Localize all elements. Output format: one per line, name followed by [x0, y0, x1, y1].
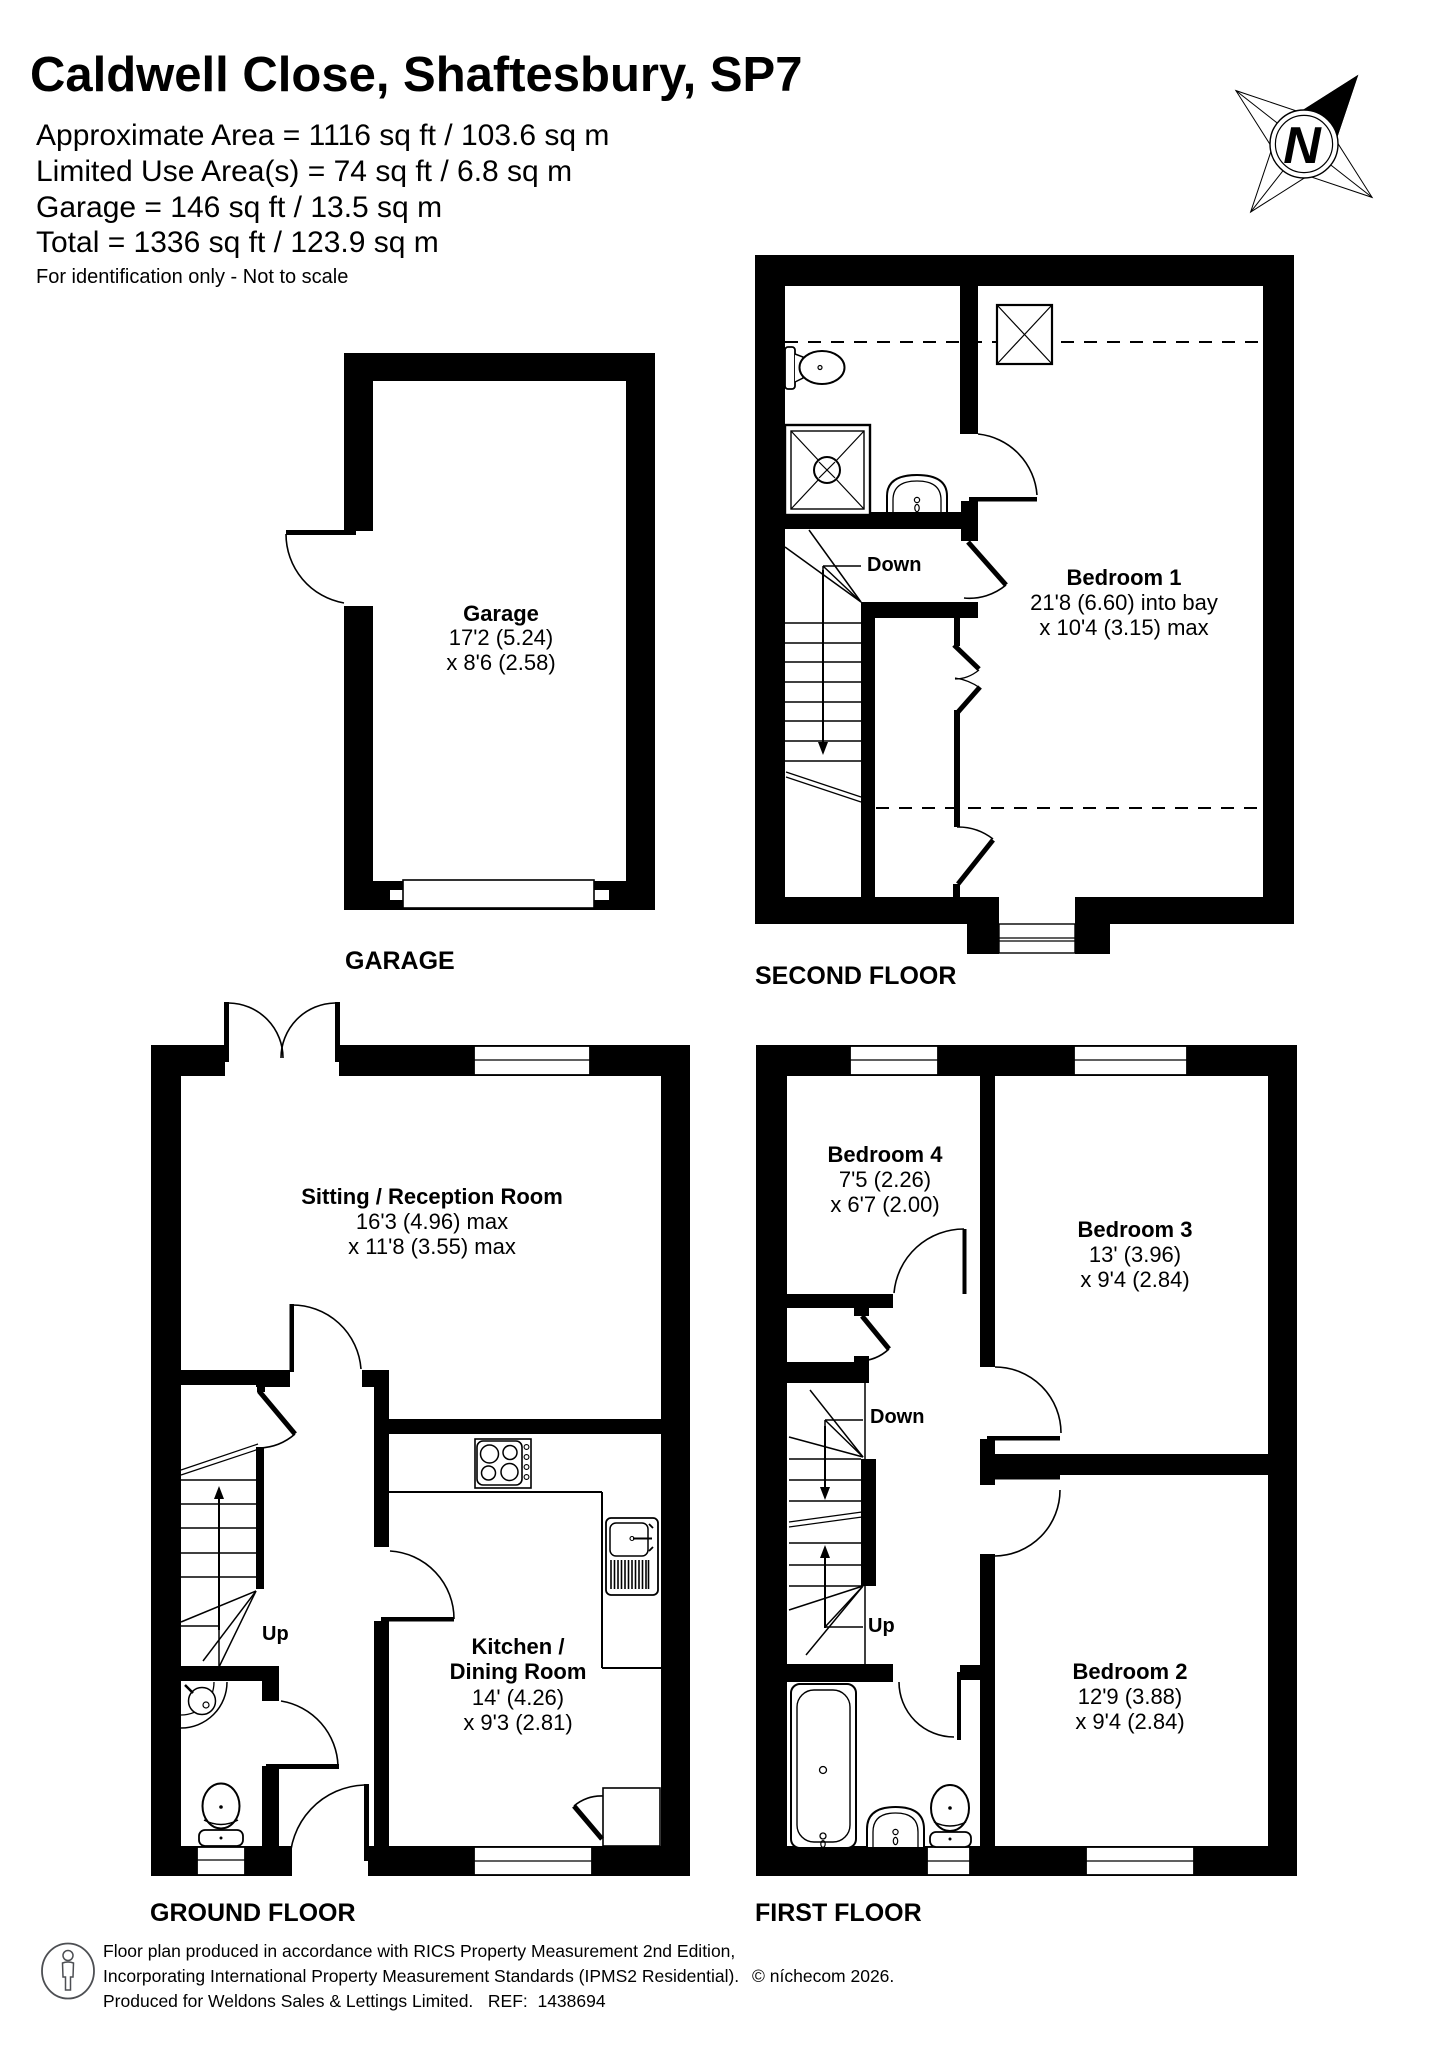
svg-text:14' (4.26): 14' (4.26)	[472, 1685, 564, 1710]
svg-text:N: N	[1283, 117, 1322, 175]
svg-text:Up: Up	[262, 1623, 289, 1645]
svg-text:x 8'6 (2.58): x 8'6 (2.58)	[446, 650, 555, 675]
svg-text:GARAGE: GARAGE	[345, 947, 455, 975]
svg-text:16'3 (4.96) max: 16'3 (4.96) max	[356, 1209, 508, 1234]
svg-text:Bedroom 1: Bedroom 1	[1067, 565, 1182, 590]
svg-text:Incorporating International Pr: Incorporating International Property Mea…	[103, 1966, 739, 1986]
svg-text:For identification only - Not: For identification only - Not to scale	[36, 266, 348, 288]
svg-text:7'5 (2.26): 7'5 (2.26)	[839, 1167, 931, 1192]
svg-text:Sitting / Reception Room: Sitting / Reception Room	[301, 1184, 563, 1209]
svg-text:x 6'7 (2.00): x 6'7 (2.00)	[830, 1192, 939, 1217]
svg-text:Up: Up	[868, 1615, 895, 1637]
svg-text:x 10'4 (3.15) max: x 10'4 (3.15) max	[1039, 615, 1208, 640]
svg-text:Garage: Garage	[463, 601, 539, 626]
svg-text:x 11'8 (3.55) max: x 11'8 (3.55) max	[348, 1234, 516, 1259]
svg-text:Bedroom 4: Bedroom 4	[828, 1142, 944, 1167]
svg-text:12'9 (3.88): 12'9 (3.88)	[1078, 1684, 1183, 1709]
svg-text:x 9'3 (2.81): x 9'3 (2.81)	[463, 1710, 572, 1735]
svg-text:SECOND FLOOR: SECOND FLOOR	[755, 962, 956, 990]
svg-text:FIRST FLOOR: FIRST FLOOR	[755, 1899, 922, 1927]
svg-text:© níchecom 2026.: © níchecom 2026.	[752, 1966, 894, 1986]
svg-text:Approximate Area = 1116 sq ft: Approximate Area = 1116 sq ft / 103.6 sq…	[36, 119, 609, 152]
svg-text:Floor plan produced in accorda: Floor plan produced in accordance with R…	[103, 1941, 735, 1961]
svg-text:13' (3.96): 13' (3.96)	[1089, 1242, 1181, 1267]
svg-text:Produced for Weldons Sales & L: Produced for Weldons Sales & Lettings Li…	[103, 1991, 606, 2011]
svg-text:17'2 (5.24): 17'2 (5.24)	[449, 625, 554, 650]
svg-text:x 9'4 (2.84): x 9'4 (2.84)	[1080, 1267, 1189, 1292]
svg-text:Kitchen /: Kitchen /	[472, 1634, 565, 1659]
svg-text:Garage = 146 sq ft / 13.5 sq m: Garage = 146 sq ft / 13.5 sq m	[36, 191, 442, 224]
svg-text:x 9'4 (2.84): x 9'4 (2.84)	[1075, 1709, 1184, 1734]
svg-text:GROUND FLOOR: GROUND FLOOR	[150, 1899, 356, 1927]
svg-text:Caldwell Close, Shaftesbury, S: Caldwell Close, Shaftesbury, SP7	[30, 48, 802, 102]
svg-text:21'8 (6.60) into bay: 21'8 (6.60) into bay	[1030, 590, 1218, 615]
svg-text:Bedroom 3: Bedroom 3	[1078, 1217, 1193, 1242]
svg-text:Down: Down	[870, 1406, 924, 1428]
svg-text:Limited Use Area(s) = 74 sq ft: Limited Use Area(s) = 74 sq ft / 6.8 sq …	[36, 155, 572, 188]
svg-text:Dining Room: Dining Room	[450, 1659, 587, 1684]
svg-text:Down: Down	[867, 554, 921, 576]
svg-text:Bedroom 2: Bedroom 2	[1073, 1659, 1188, 1684]
svg-text:Total = 1336 sq ft / 123.9 sq: Total = 1336 sq ft / 123.9 sq m	[36, 226, 439, 259]
